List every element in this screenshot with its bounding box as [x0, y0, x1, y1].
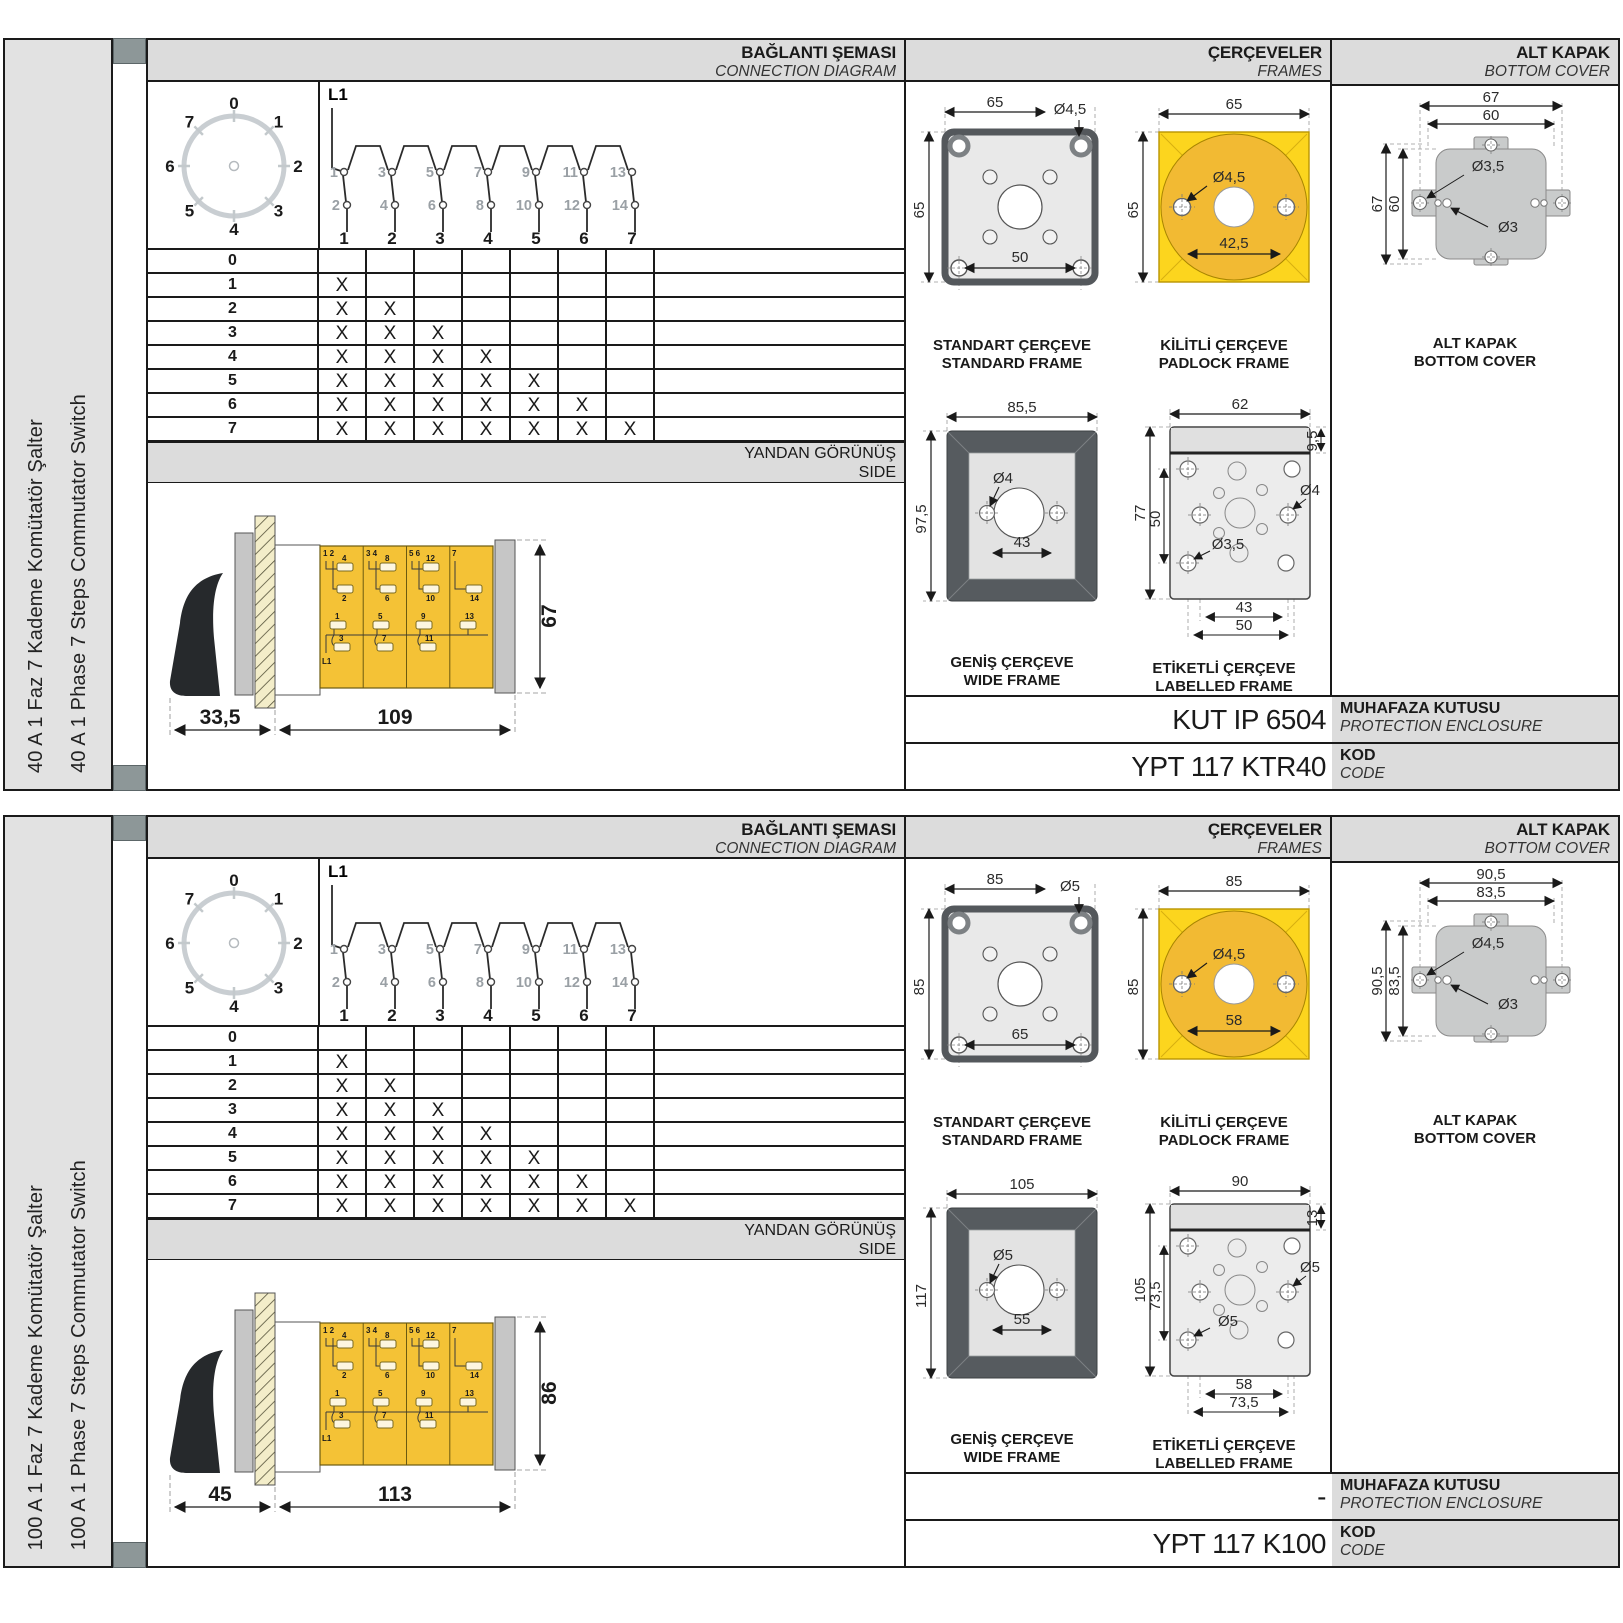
connection-column: BAĞLANTI ŞEMASI CONNECTION DIAGRAM	[148, 817, 906, 1566]
terminal-label: 1	[335, 612, 340, 621]
contact-mark-cell: X	[462, 393, 510, 417]
dim-pitch-2: 73,5	[1229, 1394, 1258, 1411]
contact-mark-cell	[558, 1122, 606, 1146]
step-row-label: 0	[148, 1026, 318, 1050]
standard-frame-caption: STANDART ÇERÇEVE STANDARD FRAME	[933, 337, 1091, 373]
caption-tr: KİLİTLİ ÇERÇEVE	[1159, 337, 1290, 355]
step-row-label: 4	[148, 345, 318, 369]
right-columns: ÇERÇEVELER FRAMES	[906, 40, 1618, 789]
step-row-label: 6	[148, 393, 318, 417]
body-end-cap	[495, 1317, 515, 1470]
contact-mark-cell	[366, 1050, 414, 1074]
caption-tr: GENİŞ ÇERÇEVE	[950, 1431, 1073, 1449]
connection-title-tr: BAĞLANTI ŞEMASI	[148, 820, 896, 840]
enclosure-label-en: PROTECTION ENCLOSURE	[1340, 718, 1618, 736]
dim-cover-outer-height: 67	[1369, 196, 1386, 213]
enclosure-label-tr: MUHAFAZA KUTUSU	[1340, 1477, 1618, 1495]
step-contact-table: 01X2XX3XXX4XXXX5XXXXX6XXXXXX7XXXXXXX	[148, 248, 904, 442]
contact-mark-cell	[462, 1098, 510, 1122]
frames-title-en: FRAMES	[906, 63, 1322, 81]
product-name-tr: 100 A 1 Faz 7 Kademe Komütatör Şalter	[25, 1185, 48, 1550]
rotary-dial-drawing: 0 1 2 3 4 5 6 7	[148, 859, 318, 1025]
code-row: YPT 117 K100 KOD CODE	[906, 1519, 1618, 1566]
wide-frame-caption: GENİŞ ÇERÇEVE WIDE FRAME	[950, 1431, 1073, 1467]
cover-title-tr: ALT KAPAK	[1332, 43, 1610, 63]
contact-mark-cell	[558, 1050, 606, 1074]
contact-mark-cell: X	[318, 1050, 366, 1074]
enclosure-label: MUHAFAZA KUTUSU PROTECTION ENCLOSURE	[1332, 697, 1618, 742]
frames-header: ÇERÇEVELER FRAMES	[906, 40, 1330, 82]
filler-cell	[654, 1074, 904, 1098]
frames-title-tr: ÇERÇEVELER	[906, 820, 1322, 840]
bottom-cover-caption: ALT KAPAK BOTTOM COVER	[1414, 335, 1536, 371]
switch-handle	[170, 573, 223, 696]
connection-column: BAĞLANTI ŞEMASI CONNECTION DIAGRAM	[148, 40, 906, 789]
contact-mark-cell	[366, 249, 414, 273]
contact-mark-cell: X	[366, 1194, 414, 1218]
contact-mark-cell: X	[462, 369, 510, 393]
dim-hole-left: Ø3,5	[1212, 536, 1245, 553]
enclosure-row: - MUHAFAZA KUTUSU PROTECTION ENCLOSURE	[906, 1472, 1618, 1519]
contact-mark-cell	[606, 297, 654, 321]
contact-mark-cell: X	[366, 393, 414, 417]
wide-frame-drawing: 85,5 97,5 Ø4 43	[907, 391, 1117, 653]
section-main: BAĞLANTI ŞEMASI CONNECTION DIAGRAM	[146, 815, 1620, 1568]
contact-number: 10	[516, 975, 532, 991]
contact-mark-cell: X	[414, 369, 462, 393]
dial-position-3: 3	[274, 202, 283, 221]
contact-mark-cell: X	[462, 345, 510, 369]
cover-column: ALT KAPAK BOTTOM COVER	[1332, 40, 1618, 695]
contact-mark-cell: X	[414, 1146, 462, 1170]
dial-position-5: 5	[185, 979, 194, 998]
step-number: 7	[627, 1006, 636, 1025]
side-view: 1 2 3 4 5 6 7 4 2 8 6 12 10 14 1 3 5	[148, 1260, 904, 1567]
contact-mark-cell	[510, 345, 558, 369]
dim-body-length: 113	[378, 1483, 412, 1506]
contact-mark-cell	[510, 1050, 558, 1074]
contact-mark-cell	[510, 1074, 558, 1098]
contact-mark-cell: X	[558, 417, 606, 441]
contact-mark-cell	[414, 1026, 462, 1050]
step-table-body: 01X2XX3XXX4XXXX5XXXXX6XXXXXX7XXXXXXX	[148, 249, 904, 441]
cover-title-en: BOTTOM COVER	[1332, 63, 1610, 81]
enclosure-row: KUT IP 6504 MUHAFAZA KUTUSU PROTECTION E…	[906, 695, 1618, 742]
standard-frame: 85 Ø5 85 65 STANDART ÇERÇEVE STANDARD F	[906, 859, 1118, 1166]
mounting-panel	[255, 1293, 275, 1485]
dial-position-5: 5	[185, 202, 194, 221]
table-row: 1X	[148, 273, 904, 297]
caption-en: WIDE FRAME	[950, 1449, 1073, 1467]
dial-position-4: 4	[229, 997, 239, 1016]
contact-mark-cell: X	[558, 1170, 606, 1194]
connection-header: BAĞLANTI ŞEMASI CONNECTION DIAGRAM	[148, 40, 904, 82]
filler-cell	[654, 393, 904, 417]
dim-hole-left: Ø5	[1218, 1313, 1238, 1330]
step-row-label: 5	[148, 369, 318, 393]
bottom-cover-caption: ALT KAPAK BOTTOM COVER	[1414, 1112, 1536, 1148]
contact-mark-cell	[462, 1026, 510, 1050]
step-row-label: 5	[148, 1146, 318, 1170]
filler-cell	[654, 1194, 904, 1218]
terminal-label: 13	[465, 612, 474, 621]
contact-mark-cell	[558, 321, 606, 345]
dim-hole-diameter: Ø4,5	[1213, 169, 1246, 186]
filler-cell	[654, 1146, 904, 1170]
step-row-label: 7	[148, 417, 318, 441]
padlock-frame-caption: KİLİTLİ ÇERÇEVE PADLOCK FRAME	[1159, 1114, 1290, 1150]
contact-mark-cell	[462, 1050, 510, 1074]
terminal-label: 9	[421, 612, 426, 621]
caption-tr: GENİŞ ÇERÇEVE	[950, 654, 1073, 672]
contact-mark-cell	[510, 1026, 558, 1050]
contact-number: 4	[380, 198, 388, 214]
step-row-label: 7	[148, 1194, 318, 1218]
frames-title-tr: ÇERÇEVELER	[906, 43, 1322, 63]
contact-schematic-drawing: L1	[320, 82, 904, 248]
contact-mark-cell	[558, 1098, 606, 1122]
dim-hole-pitch: 65	[1012, 1026, 1029, 1043]
standard-frame: 65 Ø4,5 65 50 STANDART ÇERÇEVE STANDARD	[906, 82, 1118, 389]
dim-cover-inner-height: 83,5	[1386, 966, 1403, 995]
dim-pitch-1: 58	[1236, 1376, 1253, 1393]
contact-mark-cell: X	[510, 1194, 558, 1218]
dial-position-0: 0	[229, 94, 238, 113]
dim-cover-inner-width: 83,5	[1476, 884, 1505, 901]
table-row: 3XXX	[148, 321, 904, 345]
terminal-label: 4	[342, 554, 347, 563]
contact-mark-cell	[414, 1050, 462, 1074]
bottom-cover: 67 60 67 60 Ø3,5 Ø3	[1332, 86, 1618, 695]
body-end-cap	[495, 540, 515, 693]
dim-hole-diameter: Ø4	[993, 470, 1013, 487]
contact-number: 12	[564, 975, 580, 991]
dim-frame-height: 85	[1125, 979, 1142, 996]
filler-cell	[654, 273, 904, 297]
contact-mark-cell	[510, 297, 558, 321]
dim-body-height: 67	[538, 604, 561, 627]
step-number: 7	[627, 229, 636, 248]
terminal-label: 2	[342, 594, 347, 603]
contact-number: 9	[522, 165, 530, 181]
contact-mark-cell: X	[318, 345, 366, 369]
step-row-label: 3	[148, 321, 318, 345]
dim-cover-inner-width: 60	[1483, 107, 1500, 124]
dim-body-length: 109	[377, 706, 412, 729]
contact-mark-cell	[366, 273, 414, 297]
shaft-housing	[275, 1322, 320, 1472]
contact-mark-cell: X	[366, 1146, 414, 1170]
contact-mark-cell: X	[318, 417, 366, 441]
contact-number: 5	[426, 942, 434, 958]
step-row-label: 1	[148, 1050, 318, 1074]
terminal-label: 6	[385, 594, 390, 603]
segment-top-label: 7	[452, 1326, 457, 1335]
labelled-frame: 62 77 50 9,5 Ø4 Ø3,5	[1118, 389, 1330, 696]
contact-mark-cell: X	[366, 1170, 414, 1194]
segment-top-label: 1 2	[323, 1326, 335, 1335]
dial-position-7: 7	[185, 890, 194, 909]
contact-schematic: L1	[320, 82, 904, 248]
bottom-cover: 90,5 83,5 90,5 83,5 Ø4,5 Ø3	[1332, 863, 1618, 1472]
contact-number: 6	[428, 975, 436, 991]
dim-inner-height: 50	[1147, 511, 1164, 528]
side-view-drawing: 1 2 3 4 5 6 7 4 2 8 6 12 10 14 1 3 5	[148, 483, 904, 785]
contact-mark-cell: X	[414, 1122, 462, 1146]
contact-number: 3	[378, 165, 386, 181]
side-view-drawing: 1 2 3 4 5 6 7 4 2 8 6 12 10 14 1 3 5	[148, 1260, 904, 1562]
contact-mark-cell: X	[318, 273, 366, 297]
contact-mark-cell	[414, 297, 462, 321]
dim-hole-diameter: Ø5	[1060, 878, 1080, 895]
dim-hole-pitch: 50	[1012, 249, 1029, 266]
contact-mark-cell: X	[318, 1122, 366, 1146]
rotary-dial: 0 1 2 3 4 5 6 7	[148, 859, 320, 1025]
dim-frame-height: 65	[1125, 202, 1142, 219]
contact-number: 14	[612, 198, 628, 214]
binder-mark-top	[113, 815, 146, 841]
caption-tr: STANDART ÇERÇEVE	[933, 1114, 1091, 1132]
side-view-header: YANDAN GÖRÜNÜŞ SIDE	[148, 1219, 904, 1260]
step-number: 1	[339, 1006, 348, 1025]
code-row: YPT 117 KTR40 KOD CODE	[906, 742, 1618, 789]
padlock-frame: 85 85 Ø4,5 58 KİLİTLİ ÇERÇEVE PADLOCK F	[1118, 859, 1330, 1166]
step-row-label: 2	[148, 297, 318, 321]
step-row-label: 1	[148, 273, 318, 297]
step-number: 5	[531, 229, 540, 248]
contact-number: 3	[378, 942, 386, 958]
filler-cell	[654, 297, 904, 321]
side-title-en: SIDE	[148, 1241, 896, 1259]
terminal-label: L1	[322, 657, 332, 666]
code-label-en: CODE	[1340, 1542, 1618, 1560]
binder-strip	[113, 38, 146, 791]
mounting-panel	[255, 516, 275, 708]
dim-cover-outer-width: 67	[1483, 89, 1500, 106]
contact-number: 11	[563, 942, 578, 958]
dial-position-7: 7	[185, 113, 194, 132]
frames-column: ÇERÇEVELER FRAMES	[906, 817, 1332, 1472]
dim-cover-hole-small: Ø3	[1498, 996, 1518, 1013]
terminal-label: 10	[426, 1371, 435, 1380]
contact-number: 2	[332, 975, 340, 991]
table-row: 1X	[148, 1050, 904, 1074]
caption-en: STANDARD FRAME	[933, 355, 1091, 373]
connection-title-en: CONNECTION DIAGRAM	[148, 63, 896, 81]
caption-en: PADLOCK FRAME	[1159, 355, 1290, 373]
catalog-page: 40 A 1 Faz 7 Kademe Komütatör Şalter 40 …	[0, 0, 1623, 1568]
dim-cover-hole-big: Ø3,5	[1472, 158, 1505, 175]
phase-label: L1	[328, 85, 348, 104]
contact-number: 5	[426, 165, 434, 181]
contact-mark-cell	[606, 249, 654, 273]
contact-mark-cell	[510, 321, 558, 345]
contact-number: 13	[610, 165, 626, 181]
contact-mark-cell	[414, 249, 462, 273]
contact-mark-cell: X	[558, 393, 606, 417]
contact-mark-cell	[558, 1074, 606, 1098]
table-row: 2XX	[148, 1074, 904, 1098]
step-row-label: 2	[148, 1074, 318, 1098]
step-number: 6	[579, 1006, 588, 1025]
caption-tr: ALT KAPAK	[1414, 1112, 1536, 1130]
dim-frame-width: 65	[1226, 96, 1243, 113]
terminal-label: 8	[385, 1331, 390, 1340]
dim-cover-hole-small: Ø3	[1498, 219, 1518, 236]
switch-handle	[170, 1350, 223, 1473]
terminal-label: 13	[465, 1389, 474, 1398]
binder-strip	[113, 815, 146, 1568]
enclosure-label: MUHAFAZA KUTUSU PROTECTION ENCLOSURE	[1332, 1474, 1618, 1519]
terminal-label: 5	[378, 1389, 383, 1398]
contact-mark-cell	[318, 249, 366, 273]
contact-mark-cell	[318, 1026, 366, 1050]
product-section: 100 A 1 Faz 7 Kademe Komütatör Şalter 10…	[3, 815, 1620, 1568]
step-contact-table: 01X2XX3XXX4XXXX5XXXXX6XXXXXX7XXXXXXX	[148, 1025, 904, 1219]
table-row: 5XXXXX	[148, 1146, 904, 1170]
bottom-cover-drawing: 67 60 67 60 Ø3,5 Ø3	[1336, 86, 1614, 334]
caption-tr: STANDART ÇERÇEVE	[933, 337, 1091, 355]
terminal-label: 2	[342, 1371, 347, 1380]
enclosure-value: -	[906, 1474, 1332, 1519]
contact-mark-cell	[606, 321, 654, 345]
dim-frame-height: 97,5	[913, 505, 930, 534]
handle-plate	[235, 1310, 253, 1472]
caption-en: BOTTOM COVER	[1414, 1130, 1536, 1148]
contact-mark-cell	[558, 1146, 606, 1170]
side-title-en: SIDE	[148, 464, 896, 482]
diagram-row: 0 1 2 3 4 5 6 7 L1	[148, 82, 904, 248]
phase-label: L1	[328, 862, 348, 881]
dim-hole-right: Ø4	[1300, 482, 1320, 499]
terminal-label: 3	[339, 1411, 344, 1420]
step-row-label: 3	[148, 1098, 318, 1122]
product-section: 40 A 1 Faz 7 Kademe Komütatör Şalter 40 …	[3, 38, 1620, 791]
terminal-label: 1	[335, 1389, 340, 1398]
terminal-label: 12	[426, 554, 435, 563]
dim-frame-width: 90	[1232, 1173, 1249, 1190]
dim-cover-outer-height: 90,5	[1369, 966, 1386, 995]
table-row: 5XXXXX	[148, 369, 904, 393]
contact-mark-cell	[606, 1146, 654, 1170]
product-name-en: 100 A 1 Phase 7 Steps Commutator Switch	[68, 1160, 91, 1550]
contact-mark-cell: X	[510, 1146, 558, 1170]
terminal-label: 7	[382, 634, 387, 643]
terminal-label: 6	[385, 1371, 390, 1380]
contact-mark-cell	[462, 321, 510, 345]
frames-title-en: FRAMES	[906, 840, 1322, 858]
sections-root: 40 A 1 Faz 7 Kademe Komütatör Şalter 40 …	[3, 38, 1620, 1568]
dial-position-2: 2	[293, 157, 302, 176]
padlock-frame: 65 65 Ø4,5 42,5 KİLİTLİ ÇERÇEVE PADLOCK	[1118, 82, 1330, 389]
contact-mark-cell	[510, 273, 558, 297]
contact-mark-cell: X	[318, 1146, 366, 1170]
contact-number: 13	[610, 942, 626, 958]
code-label-tr: KOD	[1340, 747, 1618, 765]
contact-mark-cell: X	[366, 345, 414, 369]
caption-en: LABELLED FRAME	[1152, 678, 1295, 696]
side-view: 1 2 3 4 5 6 7 4 2 8 6 12 10 14 1 3 5	[148, 483, 904, 790]
contact-mark-cell	[462, 249, 510, 273]
contact-mark-cell: X	[414, 321, 462, 345]
contact-number: 7	[474, 165, 482, 181]
contact-mark-cell: X	[462, 1194, 510, 1218]
terminal-label: 9	[421, 1389, 426, 1398]
dim-band-height: 9,5	[1304, 431, 1321, 452]
step-row-label: 4	[148, 1122, 318, 1146]
dial-position-3: 3	[274, 979, 283, 998]
cover-title-en: BOTTOM COVER	[1332, 840, 1610, 858]
contact-number: 8	[476, 198, 484, 214]
frames-grid: 85 Ø5 85 65 STANDART ÇERÇEVE STANDARD F	[906, 859, 1330, 1473]
connection-title-tr: BAĞLANTI ŞEMASI	[148, 43, 896, 63]
filler-cell	[654, 1050, 904, 1074]
side-title-tr: YANDAN GÖRÜNÜŞ	[148, 1222, 896, 1240]
terminal-label: 7	[382, 1411, 387, 1420]
code-value: YPT 117 K100	[906, 1521, 1332, 1566]
contact-mark-cell: X	[414, 1170, 462, 1194]
contact-mark-cell: X	[366, 1098, 414, 1122]
table-row: 0	[148, 1026, 904, 1050]
dim-pitch-2: 50	[1236, 617, 1253, 634]
contact-number: 9	[522, 942, 530, 958]
padlock-frame-drawing: 85 85 Ø4,5 58	[1119, 861, 1329, 1113]
contact-mark-cell: X	[510, 1170, 558, 1194]
contact-mark-cell: X	[366, 321, 414, 345]
step-row-label: 6	[148, 1170, 318, 1194]
padlock-frame-caption: KİLİTLİ ÇERÇEVE PADLOCK FRAME	[1159, 337, 1290, 373]
enclosure-label-en: PROTECTION ENCLOSURE	[1340, 1495, 1618, 1513]
contact-mark-cell	[462, 1074, 510, 1098]
contact-mark-cell: X	[366, 1074, 414, 1098]
contact-number: 1	[330, 942, 338, 958]
dim-hole-pitch: 42,5	[1219, 235, 1248, 252]
dial-position-2: 2	[293, 934, 302, 953]
contact-mark-cell	[606, 1098, 654, 1122]
contact-number: 4	[380, 975, 388, 991]
step-number: 1	[339, 229, 348, 248]
code-label: KOD CODE	[1332, 744, 1618, 789]
contact-mark-cell	[606, 1074, 654, 1098]
contact-mark-cell	[606, 393, 654, 417]
contact-mark-cell: X	[414, 393, 462, 417]
filler-cell	[654, 321, 904, 345]
filler-cell	[654, 417, 904, 441]
labelled-frame-caption: ETİKETLİ ÇERÇEVE LABELLED FRAME	[1152, 1437, 1295, 1473]
dim-frame-width: 85	[987, 871, 1004, 888]
dim-hole-pitch: 55	[1014, 1311, 1031, 1328]
contact-mark-cell	[414, 273, 462, 297]
contact-mark-cell	[414, 1074, 462, 1098]
product-name-en: 40 A 1 Phase 7 Steps Commutator Switch	[68, 394, 91, 773]
table-row: 7XXXXXXX	[148, 1194, 904, 1218]
dim-frame-height: 65	[911, 202, 928, 219]
filler-cell	[654, 1170, 904, 1194]
step-number: 4	[483, 229, 493, 248]
step-number: 3	[435, 1006, 444, 1025]
contact-mark-cell: X	[318, 321, 366, 345]
code-label-tr: KOD	[1340, 1524, 1618, 1542]
table-row: 7XXXXXXX	[148, 417, 904, 441]
contact-mark-cell: X	[366, 417, 414, 441]
contact-mark-cell: X	[318, 1170, 366, 1194]
dim-frame-width: 105	[1009, 1176, 1034, 1193]
filler-cell	[654, 249, 904, 273]
dim-hole-diameter: Ø5	[993, 1247, 1013, 1264]
segment-top-label: 3 4	[366, 1326, 378, 1335]
contact-number: 2	[332, 198, 340, 214]
contact-mark-cell: X	[462, 417, 510, 441]
